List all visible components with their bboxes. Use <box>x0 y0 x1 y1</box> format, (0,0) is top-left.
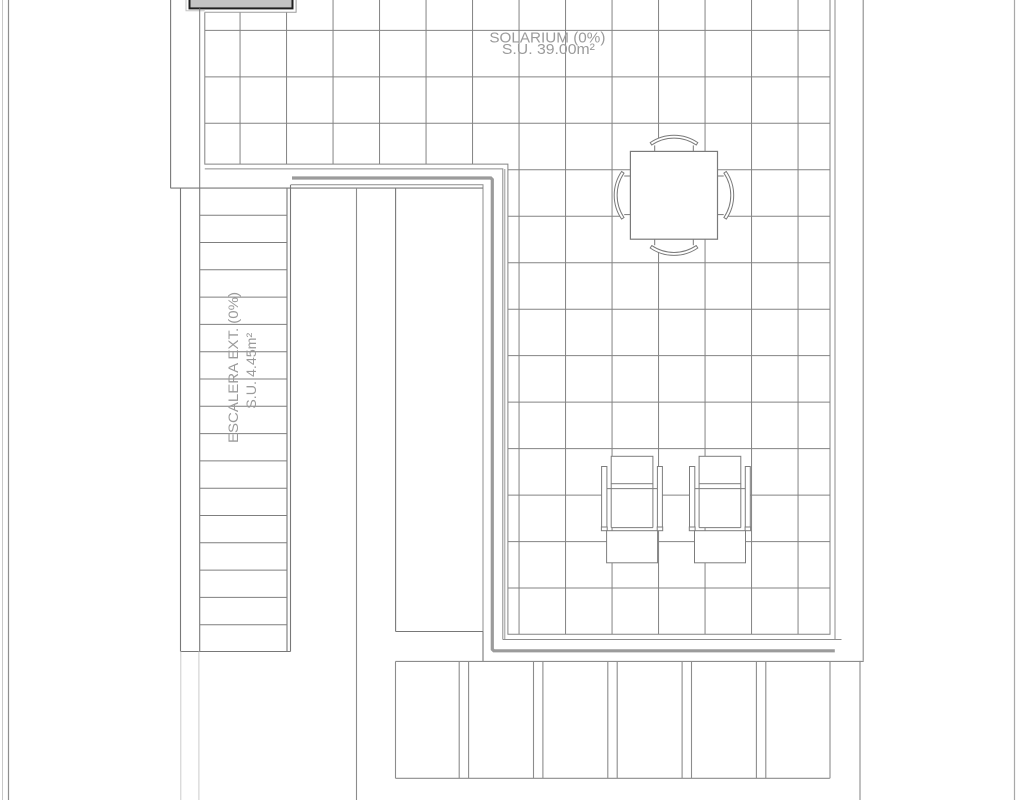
svg-text:ESCALERA EXT. (0%): ESCALERA EXT. (0%) <box>226 292 241 443</box>
svg-text:S.U. 39.00m²: S.U. 39.00m² <box>502 41 595 58</box>
svg-text:S.U. 4.45m²: S.U. 4.45m² <box>244 332 259 409</box>
